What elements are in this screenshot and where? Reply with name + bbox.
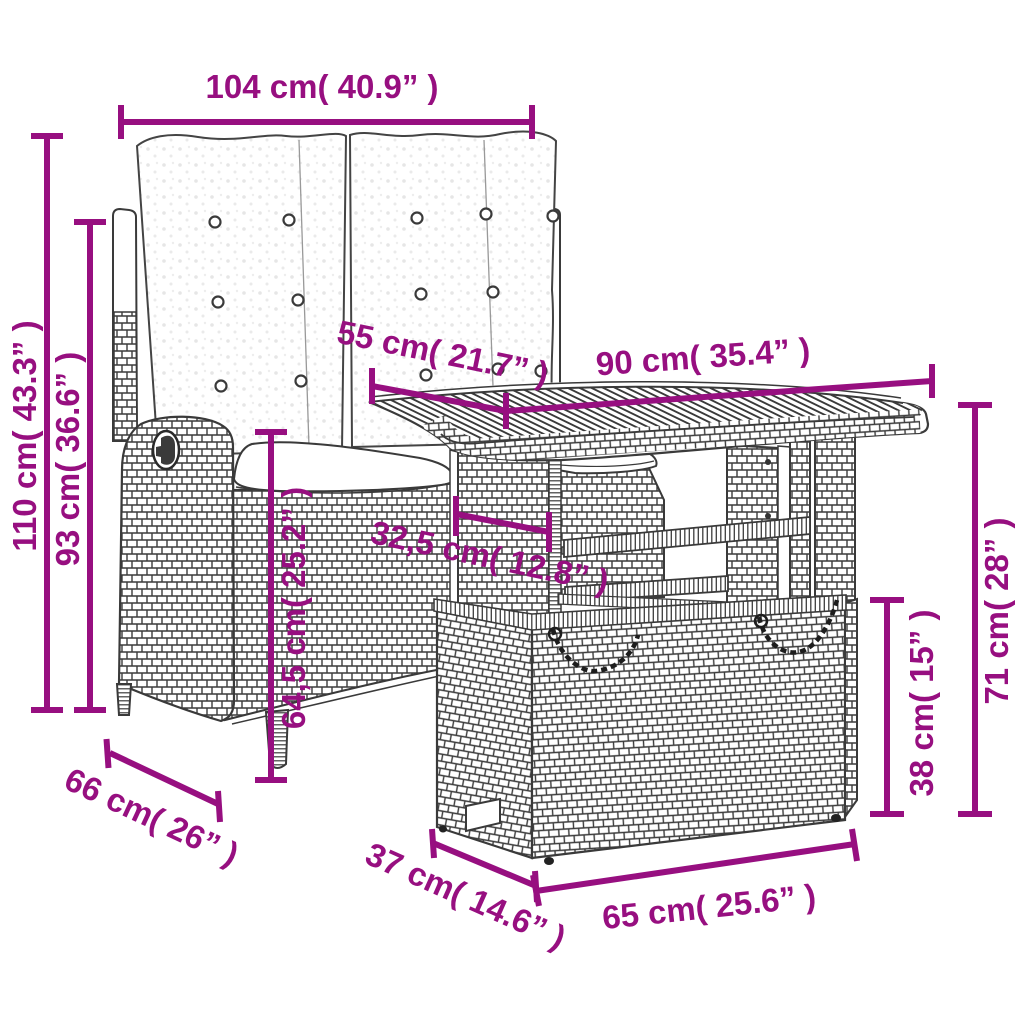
svg-text:64,5 cm( 25.2” ): 64,5 cm( 25.2” ) — [275, 487, 312, 729]
svg-text:93 cm( 36.6” ): 93 cm( 36.6” ) — [49, 352, 86, 567]
svg-text:104 cm( 40.9” ): 104 cm( 40.9” ) — [206, 68, 439, 105]
svg-text:71 cm( 28” ): 71 cm( 28” ) — [978, 517, 1015, 704]
svg-text:38 cm( 15” ): 38 cm( 15” ) — [903, 609, 940, 796]
svg-text:110 cm( 43.3” ): 110 cm( 43.3” ) — [6, 320, 43, 551]
